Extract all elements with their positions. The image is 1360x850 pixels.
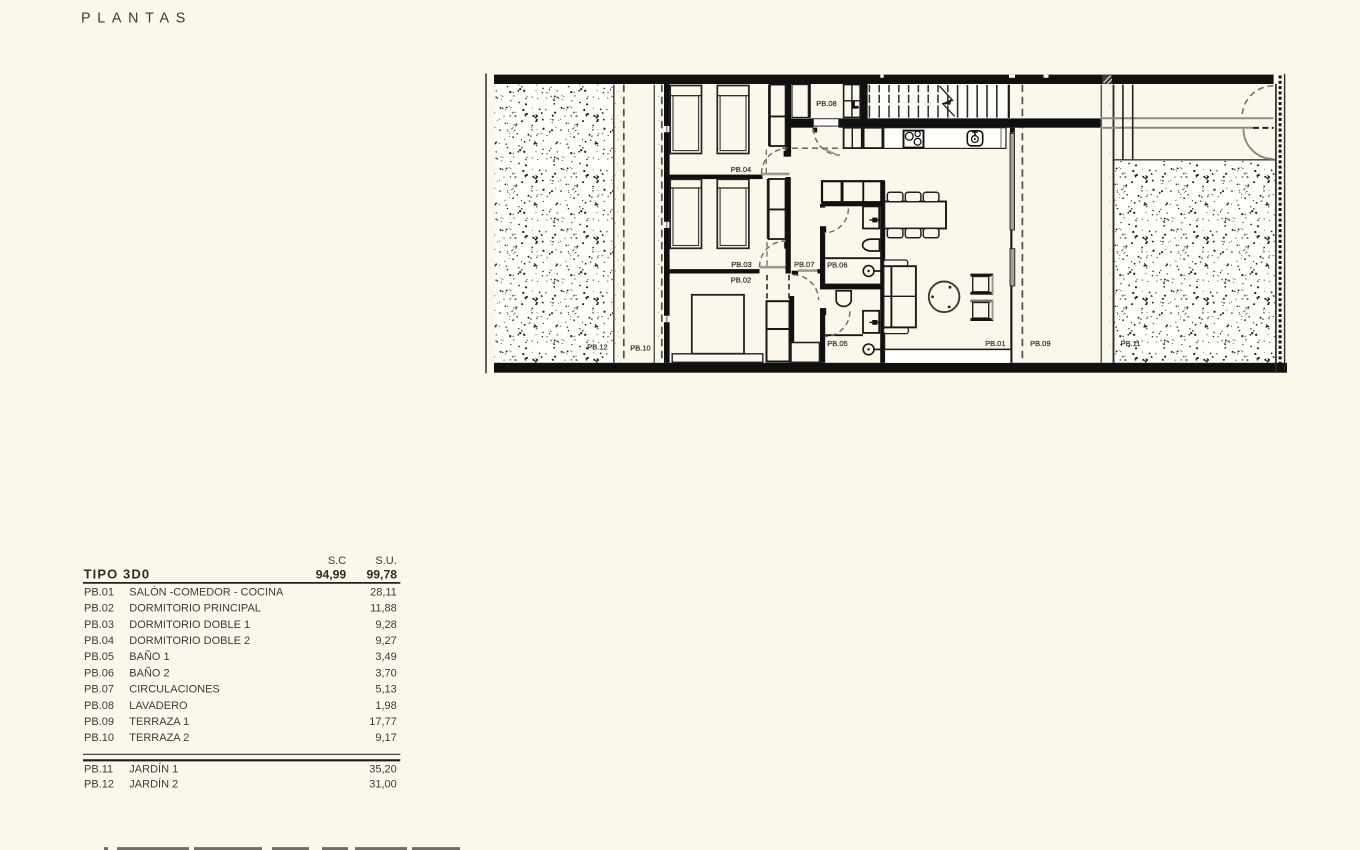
svg-text:PB.08: PB.08 <box>816 99 836 108</box>
svg-text:PLANTAS: PLANTAS <box>81 10 192 26</box>
svg-text:PB.04: PB.04 <box>84 635 114 647</box>
svg-text:PB.06: PB.06 <box>827 261 847 270</box>
svg-text:PB.05: PB.05 <box>84 651 114 663</box>
svg-text:PB.10: PB.10 <box>630 344 650 353</box>
svg-text:9,28: 9,28 <box>375 619 396 631</box>
svg-text:9,17: 9,17 <box>375 732 396 744</box>
svg-text:S.U.: S.U. <box>375 555 396 567</box>
svg-text:BAÑO 1: BAÑO 1 <box>129 650 169 663</box>
svg-text:11,88: 11,88 <box>370 603 397 615</box>
svg-text:PB.07: PB.07 <box>794 260 814 269</box>
svg-text:TIPO 3D0: TIPO 3D0 <box>84 567 151 582</box>
svg-text:PB.08: PB.08 <box>84 700 114 712</box>
svg-text:28,11: 28,11 <box>370 586 397 598</box>
svg-text:PB.09: PB.09 <box>84 716 114 728</box>
svg-text:3,49: 3,49 <box>375 651 396 663</box>
svg-text:31,00: 31,00 <box>369 779 397 791</box>
svg-text:TERRAZA 2: TERRAZA 2 <box>129 732 189 744</box>
svg-text:PB.11: PB.11 <box>84 763 113 775</box>
svg-text:PB.01: PB.01 <box>84 586 114 598</box>
svg-text:PB.03: PB.03 <box>84 619 114 631</box>
svg-text:PB.05: PB.05 <box>827 339 847 348</box>
svg-text:17,77: 17,77 <box>369 716 397 728</box>
svg-text:JARDÍN 1: JARDÍN 1 <box>129 762 178 775</box>
svg-text:PB.03: PB.03 <box>731 260 751 269</box>
svg-text:TERRAZA 1: TERRAZA 1 <box>129 716 189 728</box>
svg-text:DORMITORIO PRINCIPAL: DORMITORIO PRINCIPAL <box>129 603 261 615</box>
svg-text:JARDÍN 2: JARDÍN 2 <box>129 778 178 791</box>
svg-text:CIRCULACIONES: CIRCULACIONES <box>129 684 219 696</box>
svg-text:PB.09: PB.09 <box>1030 339 1050 348</box>
svg-text:BAÑO 2: BAÑO 2 <box>129 666 169 679</box>
svg-text:PB.06: PB.06 <box>84 667 114 679</box>
svg-text:PB.12: PB.12 <box>587 343 607 352</box>
svg-text:PB.10: PB.10 <box>84 732 114 744</box>
svg-text:5,13: 5,13 <box>375 684 396 696</box>
svg-text:DORMITORIO DOBLE 2: DORMITORIO DOBLE 2 <box>129 635 250 647</box>
svg-text:PB.11: PB.11 <box>1121 339 1141 348</box>
svg-text:94,99: 94,99 <box>316 568 347 582</box>
svg-text:PB.12: PB.12 <box>84 779 114 791</box>
svg-text:LAVADERO: LAVADERO <box>129 700 188 712</box>
svg-text:PB.02: PB.02 <box>731 276 751 285</box>
svg-text:9,27: 9,27 <box>375 635 396 647</box>
svg-text:PB.04: PB.04 <box>731 165 751 174</box>
svg-text:35,20: 35,20 <box>369 763 397 775</box>
svg-text:3,70: 3,70 <box>375 667 396 679</box>
svg-text:PB.01: PB.01 <box>985 339 1005 348</box>
svg-text:DORMITORIO DOBLE 1: DORMITORIO DOBLE 1 <box>129 619 250 631</box>
svg-text:PB.07: PB.07 <box>84 684 114 696</box>
svg-text:1,98: 1,98 <box>375 700 396 712</box>
svg-text:99,78: 99,78 <box>367 568 398 582</box>
svg-text:SALÓN -COMEDOR - COCINA: SALÓN -COMEDOR - COCINA <box>129 585 284 598</box>
svg-text:S.C: S.C <box>328 555 346 567</box>
svg-text:PB.02: PB.02 <box>84 603 114 615</box>
